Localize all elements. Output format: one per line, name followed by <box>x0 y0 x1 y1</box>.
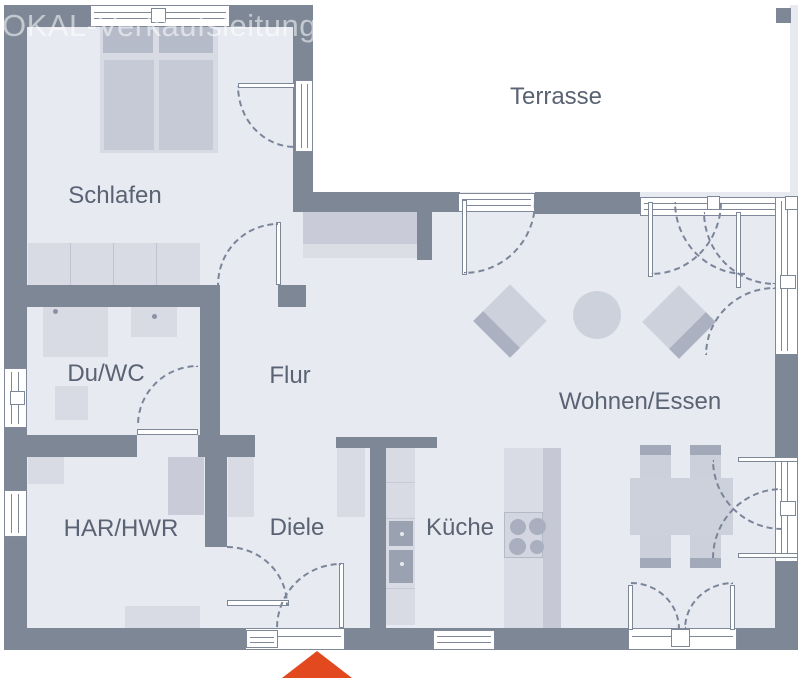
wall-schlafen-bottom <box>4 285 218 307</box>
wall-har-diele <box>205 457 227 547</box>
wall-diele-kueche <box>370 448 386 630</box>
wall-duwc-right <box>200 285 220 435</box>
terrace-pillar <box>776 8 791 23</box>
shower-drain <box>53 309 58 314</box>
wall-stub <box>278 285 306 307</box>
dining-chair <box>640 445 671 478</box>
window-kueche <box>433 630 495 650</box>
sideboard-front <box>303 244 417 258</box>
cooktop-burner <box>509 538 526 555</box>
wall-wohnen-top <box>293 192 460 212</box>
wall-left <box>4 5 27 650</box>
utility-cabinet <box>168 452 204 515</box>
wall-stub <box>417 212 432 260</box>
floor-plan: Schlafen Du/WC Flur Wohnen/Essen HAR/HWR… <box>0 0 803 678</box>
toilet-flush <box>152 314 157 319</box>
window-sash-box <box>780 501 796 516</box>
oven <box>389 550 413 583</box>
wall-duwc-bottom <box>4 435 255 457</box>
room-label-schlafen: Schlafen <box>68 182 161 210</box>
wall-wohnen-top <box>535 192 640 214</box>
window-sash-box <box>10 391 25 405</box>
toilet <box>131 303 177 337</box>
room-label-har-hwr: HAR/HWR <box>64 515 179 543</box>
utility-counter <box>125 606 200 628</box>
wall-kueche-cap <box>336 437 437 448</box>
room-label-diele: Diele <box>270 514 325 542</box>
wardrobe <box>28 243 200 285</box>
room-label-duwc: Du/WC <box>67 360 144 388</box>
entrance-threshold <box>246 630 278 648</box>
bed-mattress <box>159 60 213 150</box>
window-har <box>4 490 27 537</box>
room-label-kueche: Küche <box>426 514 494 542</box>
cooktop-burner <box>529 518 546 535</box>
door-leaf <box>137 429 198 435</box>
hall-wardrobe <box>228 450 254 517</box>
cooktop-burner <box>510 519 526 535</box>
washbasin <box>55 386 88 420</box>
dining-chair <box>640 535 671 568</box>
coffee-table <box>573 291 621 339</box>
oven-knob <box>400 562 404 566</box>
bed-mattress <box>104 60 154 150</box>
room-label-flur: Flur <box>269 362 310 390</box>
oven-knob <box>400 532 404 536</box>
hall-wardrobe <box>337 448 365 517</box>
room-label-terrasse: Terrasse <box>510 83 602 111</box>
window-sash-box <box>780 275 796 289</box>
room-label-wohnen-essen: Wohnen/Essen <box>559 388 721 416</box>
cooktop-burner <box>530 540 544 554</box>
door-schlafen-terrasse <box>295 80 313 152</box>
window-sash-box <box>785 196 798 210</box>
window-sash-box <box>671 629 690 647</box>
kitchen-counter-edge <box>543 448 561 628</box>
entrance-arrow-icon <box>282 651 352 678</box>
door-opening <box>137 435 198 457</box>
